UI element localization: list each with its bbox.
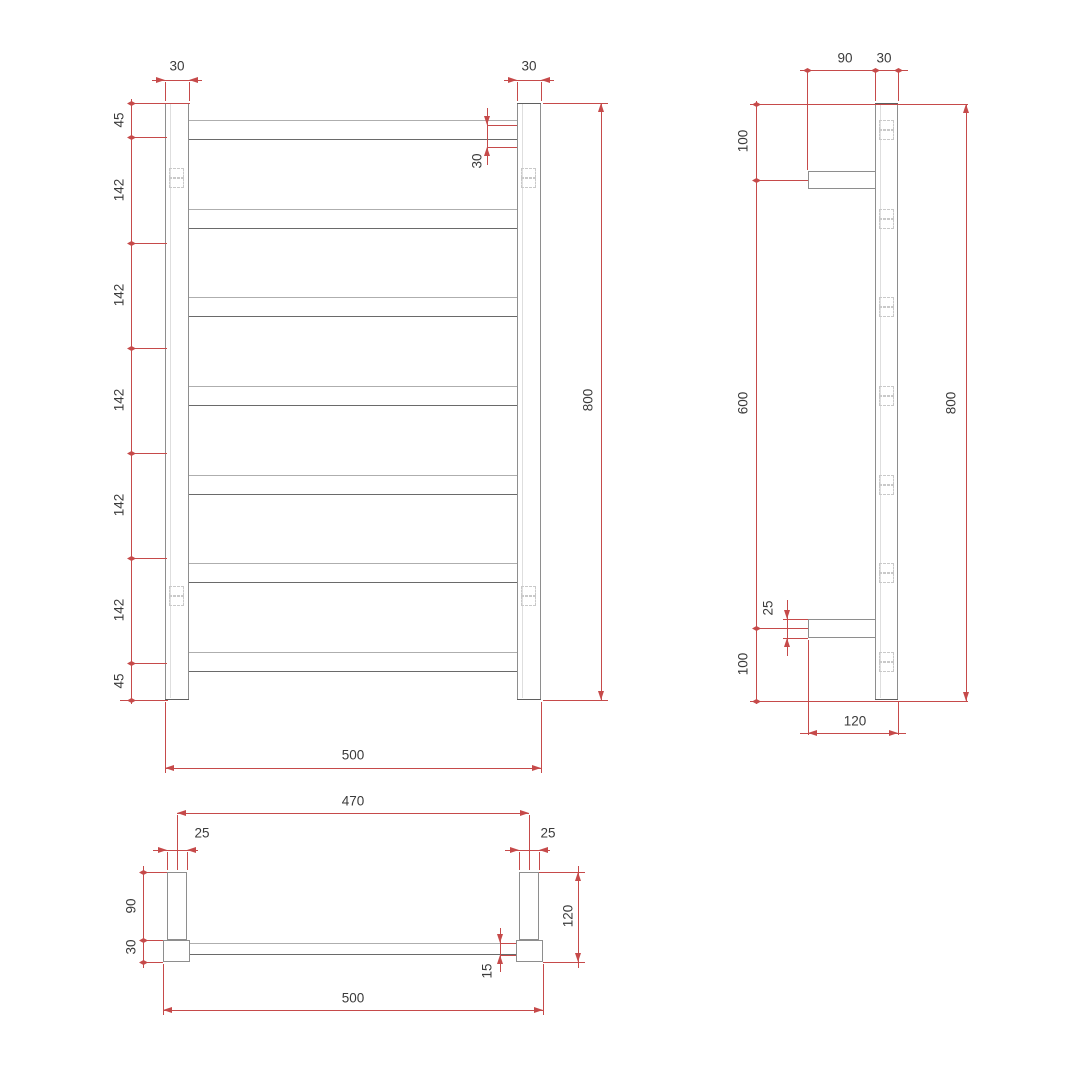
dim-chain-line	[143, 866, 144, 968]
dim-label-arm-width-right: 25	[540, 826, 555, 840]
ext-line	[543, 964, 544, 1015]
bottom-view: 470 25 25 90 30 120	[0, 0, 1080, 1080]
ext-line	[539, 872, 585, 873]
dim-line	[177, 813, 529, 814]
arrow	[187, 847, 196, 853]
arrow	[539, 847, 548, 853]
ext-line	[143, 872, 167, 873]
left-post-cap	[163, 940, 190, 962]
dim-label-post-size: 30	[124, 939, 138, 954]
arrow	[497, 934, 503, 943]
dim-label-bar-thickness: 15	[480, 963, 494, 978]
ext-line	[529, 815, 530, 870]
arrow	[520, 810, 529, 816]
dim-label-bracket-span: 470	[342, 794, 365, 808]
top-bar-plan	[190, 943, 516, 955]
arrow	[575, 953, 581, 962]
arrow	[497, 955, 503, 964]
ext-line	[143, 962, 163, 963]
left-bracket-arm	[167, 872, 187, 940]
right-bracket-arm	[519, 872, 539, 940]
dim-label-arm-length: 90	[124, 898, 138, 913]
right-post-cap	[516, 940, 543, 962]
arrow	[163, 1007, 172, 1013]
dim-label-overall-depth: 120	[561, 905, 575, 928]
dim-label-arm-width-left: 25	[194, 826, 209, 840]
ext-line	[543, 962, 585, 963]
dim-line	[163, 1010, 543, 1011]
ext-line	[167, 852, 168, 870]
ext-line	[539, 852, 540, 870]
ext-line	[177, 815, 178, 870]
technical-drawing-canvas: 30 30 30 45 142 142 142	[0, 0, 1080, 1080]
arrow	[575, 872, 581, 881]
ext-line	[500, 943, 516, 944]
arrow	[177, 810, 186, 816]
ext-line	[143, 940, 163, 941]
ext-line	[500, 955, 516, 956]
arrow	[510, 847, 519, 853]
arrow	[158, 847, 167, 853]
dim-label-overall-width: 500	[342, 991, 365, 1005]
ext-line	[519, 852, 520, 870]
ext-line	[187, 852, 188, 870]
arrow	[534, 1007, 543, 1013]
ext-line	[163, 964, 164, 1015]
